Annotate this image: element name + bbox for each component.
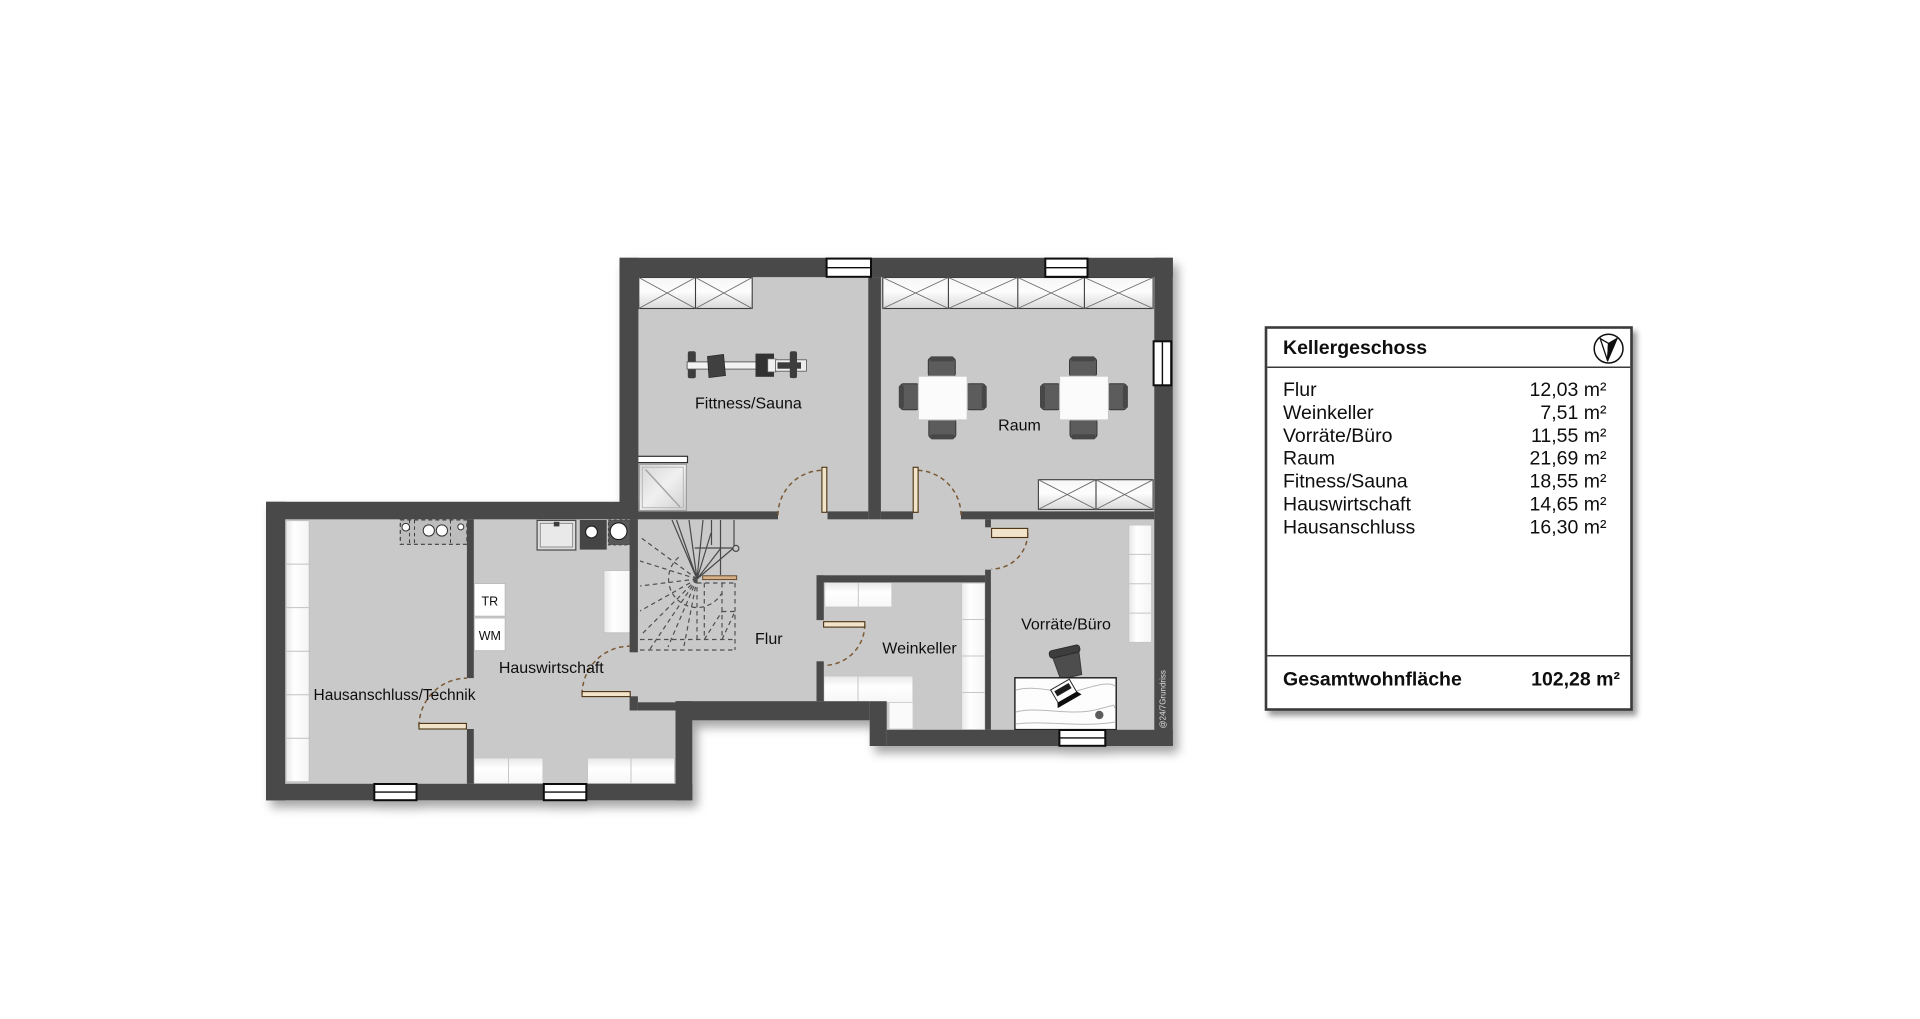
- svg-text:21,69 m²: 21,69 m²: [1530, 448, 1607, 470]
- svg-text:Vorräte/Büro: Vorräte/Büro: [1283, 425, 1393, 447]
- svg-text:Raum: Raum: [1283, 448, 1335, 470]
- svg-text:Weinkeller: Weinkeller: [882, 641, 957, 658]
- svg-text:18,55 m²: 18,55 m²: [1530, 471, 1607, 493]
- svg-text:Hausanschluss/Technik: Hausanschluss/Technik: [314, 687, 476, 704]
- svg-text:TR: TR: [481, 595, 498, 609]
- svg-text:Raum: Raum: [998, 418, 1041, 435]
- svg-text:7,51 m²: 7,51 m²: [1540, 402, 1607, 424]
- svg-text:Flur: Flur: [1283, 379, 1317, 401]
- svg-text:Kellergeschoss: Kellergeschoss: [1283, 337, 1427, 359]
- svg-text:Gesamtwohnfläche: Gesamtwohnfläche: [1283, 669, 1462, 691]
- svg-text:Fittness/Sauna: Fittness/Sauna: [695, 396, 802, 413]
- svg-text:16,30 m²: 16,30 m²: [1530, 516, 1607, 538]
- svg-text:WM: WM: [479, 629, 501, 643]
- svg-text:102,28 m²: 102,28 m²: [1531, 669, 1620, 691]
- svg-text:Hauswirtschaft: Hauswirtschaft: [1283, 494, 1411, 516]
- svg-text:Vorräte/Büro: Vorräte/Büro: [1021, 617, 1111, 634]
- svg-text:12,03 m²: 12,03 m²: [1530, 379, 1607, 401]
- svg-text:Weinkeller: Weinkeller: [1283, 402, 1374, 424]
- svg-text:Hauswirtschaft: Hauswirtschaft: [499, 660, 604, 677]
- svg-text:Flur: Flur: [755, 631, 783, 648]
- svg-text:Hausanschluss: Hausanschluss: [1283, 516, 1415, 538]
- svg-text:11,55 m²: 11,55 m²: [1531, 425, 1607, 447]
- svg-text:14,65 m²: 14,65 m²: [1530, 494, 1607, 516]
- svg-text:Fitness/Sauna: Fitness/Sauna: [1283, 471, 1408, 493]
- svg-text:@24/7Grundriss: @24/7Grundriss: [1159, 670, 1168, 728]
